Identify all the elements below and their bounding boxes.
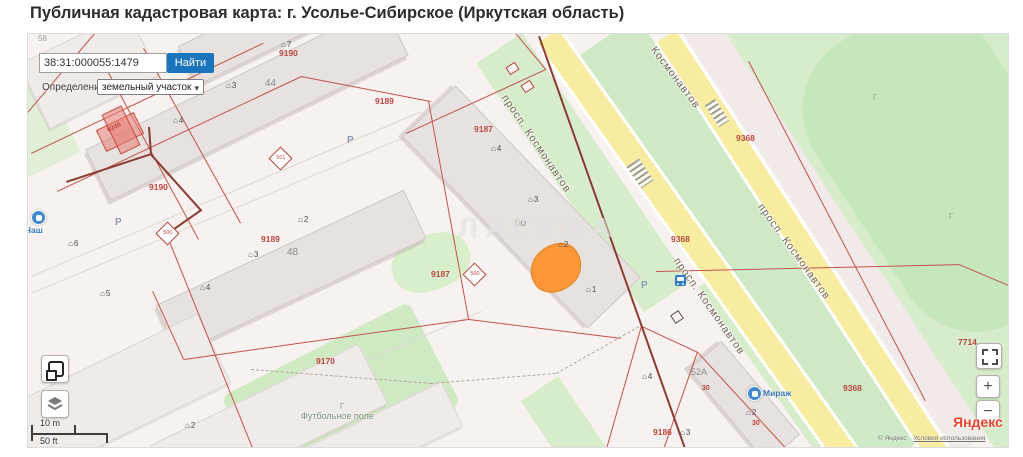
house-marker: ⌂4: [173, 116, 183, 125]
parcel-number-label: 7714: [958, 337, 977, 347]
parking-label: Р: [641, 280, 648, 291]
scale-imperial: 50 ft: [40, 436, 58, 446]
house-marker: ⌂3: [528, 195, 538, 204]
parcel-number-label: 9170: [316, 356, 335, 366]
house-marker: ⌂7: [281, 40, 291, 49]
definition-value: земельный участок: [102, 82, 191, 93]
territory-label: Г: [873, 93, 877, 102]
house-icon: ⌂: [298, 215, 303, 224]
parcel-number-label: 9189: [375, 96, 394, 106]
house-icon: ⌂: [281, 40, 286, 49]
poi-label: Чаш: [27, 225, 43, 235]
parcel-number-label: 9190: [279, 48, 298, 58]
house-marker: ⌂4: [491, 144, 501, 153]
parcel-number-label: 9186: [653, 427, 672, 437]
house-icon: ⌂: [185, 421, 190, 430]
map-attribution: © Яндекс Условия использования: [878, 435, 985, 442]
house-marker: ⌂2: [746, 408, 756, 417]
parcel-number-label: 9190: [149, 182, 168, 192]
house-icon: ⌂: [746, 408, 751, 417]
scale-metric: 10 m: [40, 418, 60, 428]
house-icon: ⌂: [68, 239, 73, 248]
yandex-logo[interactable]: Яндекс: [953, 414, 1003, 430]
house-marker: ⌂4: [642, 372, 652, 381]
house-icon: ⌂: [491, 144, 496, 153]
definition-select[interactable]: ▾ земельный участок: [97, 79, 204, 95]
layers-button[interactable]: [41, 390, 69, 418]
house-icon: ⌂: [586, 285, 591, 294]
poi-label: Мираж: [763, 388, 791, 398]
house-marker: ⌂3: [248, 250, 258, 259]
parcel-number-label: 30: [752, 420, 760, 427]
layers-icon: [47, 396, 63, 412]
parcel-number-label: 9189: [261, 234, 280, 244]
territory-label: Г: [949, 212, 953, 221]
parcel-number-label: 9368: [843, 383, 862, 393]
copyright-text: © Яндекс: [878, 435, 906, 442]
house-marker: ⌂3: [680, 428, 690, 437]
scale-bar-tick: [74, 425, 76, 434]
parcel-number-label: 30: [702, 385, 710, 392]
parcel-number-label: 9187: [474, 124, 493, 134]
house-marker: ⌂6: [68, 239, 78, 248]
building-number: 52А: [691, 367, 707, 377]
parcel-number-label: 9368: [671, 234, 690, 244]
house-marker: ⌂1: [586, 285, 596, 294]
parcel-number-label: 9187: [431, 269, 450, 279]
select-area-icon-notch: [46, 370, 57, 381]
house-icon: ⌂: [173, 116, 178, 125]
utility-box: [670, 310, 684, 324]
territory-label: Г: [340, 402, 344, 411]
parcel-boundary-line: [604, 326, 642, 448]
fullscreen-icon: [981, 348, 999, 366]
house-marker: ⌂5: [100, 289, 110, 298]
parking-label: Р: [347, 135, 354, 146]
footpath-line: [556, 326, 639, 374]
select-area-button[interactable]: [41, 355, 69, 383]
house-marker: ⌂3: [226, 81, 236, 90]
footpath-line: [431, 373, 556, 384]
zoom-in-button[interactable]: +: [976, 375, 1000, 398]
scale-bar-tick: [106, 433, 108, 443]
parcel-boundary-line: [469, 319, 621, 339]
building-number: 48: [287, 247, 298, 258]
football-field-label: Футбольное поле: [301, 411, 374, 421]
house-icon: ⌂: [200, 283, 205, 292]
page-title: Публичная кадастровая карта: г. Усолье-С…: [30, 4, 624, 23]
scale-bar: [31, 433, 108, 435]
house-marker: ⌂4: [200, 283, 210, 292]
terms-link[interactable]: Условия использования: [913, 435, 985, 442]
search-input[interactable]: [39, 53, 167, 73]
house-marker: ⌂2: [298, 215, 308, 224]
house-icon: ⌂: [100, 289, 105, 298]
watermark: ЛАГУНА: [458, 212, 620, 244]
find-button[interactable]: Найти: [167, 53, 214, 73]
parcel-number-label: 9368: [736, 133, 755, 143]
scale-bar-tick: [31, 425, 33, 441]
house-icon: ⌂: [248, 250, 253, 259]
bus-stop-icon[interactable]: [675, 275, 686, 286]
chevron-down-icon: ▾: [194, 80, 199, 96]
building-number: 58: [38, 34, 47, 43]
house-marker: ⌂2: [185, 421, 195, 430]
poi-icon[interactable]: [31, 210, 46, 225]
cadastral-map-canvas[interactable]: 501 500 500 9190 9190 9189 9189 9187 918…: [27, 33, 1009, 448]
house-icon: ⌂: [642, 372, 647, 381]
poi-icon[interactable]: [747, 386, 762, 401]
house-icon: ⌂: [226, 81, 231, 90]
house-icon: ⌂: [680, 428, 685, 437]
parking-label: Р: [115, 217, 122, 228]
fullscreen-button[interactable]: [976, 343, 1002, 369]
building-number: 44: [265, 78, 276, 89]
house-icon: ⌂: [528, 195, 533, 204]
